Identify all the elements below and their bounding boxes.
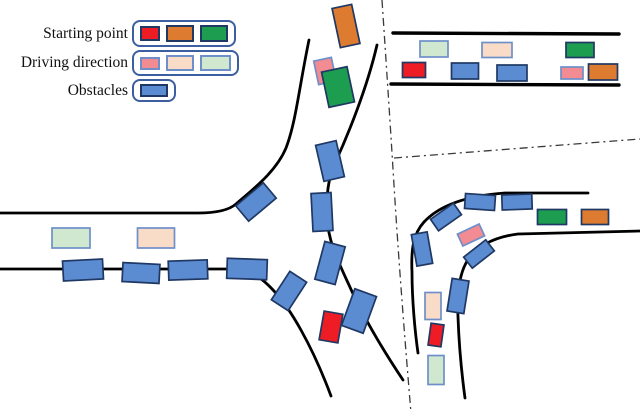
- legend-swatch-pink: [140, 57, 160, 70]
- vehicle-light-green: [52, 228, 90, 248]
- legend: Starting pointDriving directionObstacles: [0, 20, 239, 102]
- legend-row-driving-direction: Driving direction: [0, 50, 239, 76]
- vehicle-pink: [561, 67, 583, 79]
- vehicle-green: [538, 210, 567, 225]
- vehicle-red: [403, 63, 426, 78]
- legend-swatch-light-green: [200, 55, 231, 71]
- vehicle-peach: [425, 293, 441, 320]
- legend-label-starting-point: Starting point: [0, 25, 132, 43]
- vehicle-orange: [582, 210, 609, 225]
- vehicle-red: [319, 311, 343, 343]
- vehicle-orange: [589, 64, 618, 80]
- vehicle-peach: [482, 43, 512, 58]
- vehicle-pink: [457, 224, 484, 246]
- legend-swatch-green: [200, 25, 228, 42]
- legend-swatch-blue: [140, 84, 168, 97]
- vehicle-blue: [411, 232, 432, 266]
- vehicle-peach: [138, 228, 175, 248]
- vehicle-light-green: [420, 41, 448, 57]
- vehicle-orange: [332, 4, 360, 47]
- legend-box-obstacles: [132, 79, 176, 102]
- traffic-scenario-figure: Starting pointDriving directionObstacles: [0, 0, 640, 413]
- vehicle-blue: [168, 260, 208, 280]
- legend-row-starting-point: Starting point: [0, 20, 239, 47]
- vehicle-green: [566, 43, 594, 58]
- legend-swatch-orange: [166, 25, 194, 42]
- vehicle-blue: [315, 241, 345, 284]
- vehicle-blue: [465, 193, 496, 210]
- vehicle-blue: [227, 258, 268, 279]
- legend-label-obstacles: Obstacles: [0, 82, 132, 100]
- vehicle-blue: [452, 63, 479, 79]
- vehicle-light-green: [428, 356, 444, 385]
- vehicle-blue: [236, 183, 276, 221]
- scenario-separator-horizontal: [394, 139, 640, 158]
- legend-box-driving-direction: [132, 50, 239, 76]
- vehicle-green: [322, 67, 355, 108]
- vehicle-blue: [122, 263, 160, 284]
- road-edge-topright-upper: [393, 33, 619, 34]
- vehicle-blue: [63, 259, 104, 281]
- vehicle-blue: [497, 65, 527, 81]
- legend-row-obstacles: Obstacles: [0, 79, 239, 102]
- legend-swatch-red: [140, 26, 160, 41]
- vehicle-blue: [316, 141, 345, 182]
- legend-swatch-peach: [166, 55, 194, 71]
- vehicle-blue: [447, 278, 469, 313]
- vehicle-blue: [311, 193, 333, 232]
- legend-label-driving-direction: Driving direction: [0, 54, 132, 72]
- vehicle-blue: [271, 271, 306, 310]
- road-edge-topright-lower: [391, 84, 619, 85]
- vehicle-blue: [502, 194, 533, 210]
- vehicle-red: [428, 323, 444, 347]
- legend-box-starting-point: [132, 20, 236, 47]
